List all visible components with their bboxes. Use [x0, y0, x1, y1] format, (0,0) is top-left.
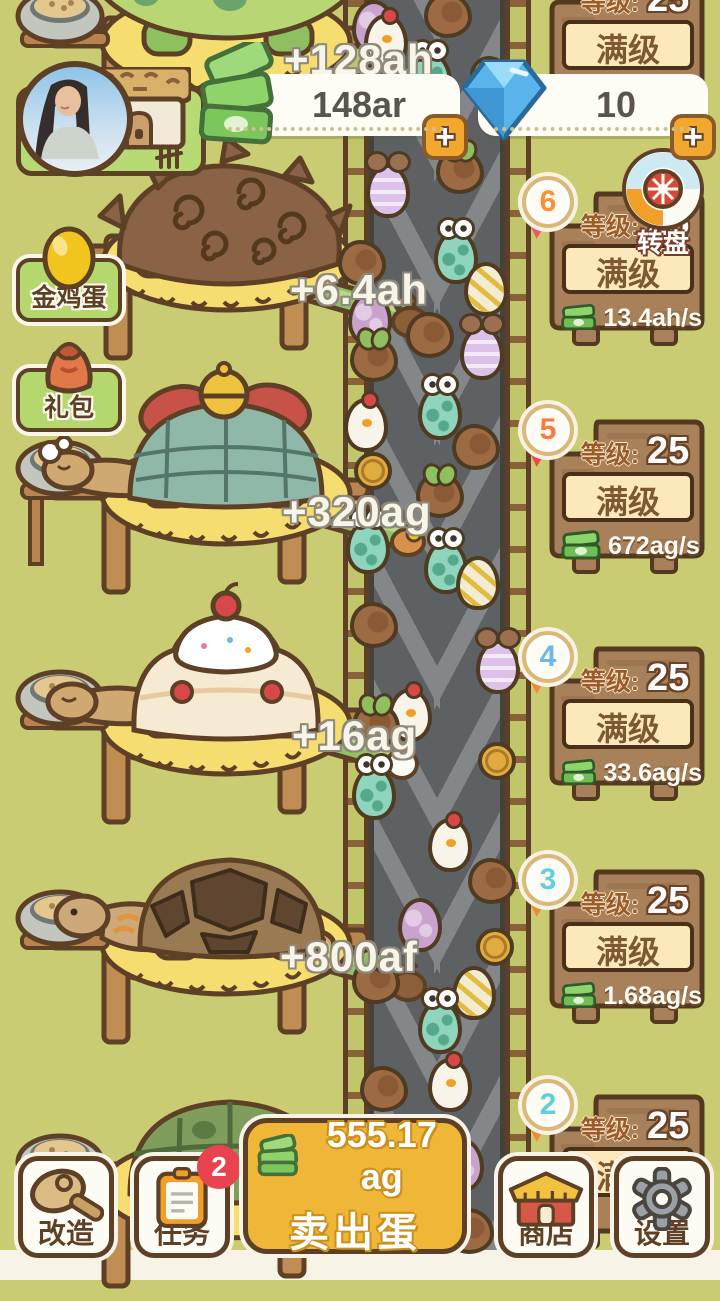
rank-badge: 3	[522, 854, 574, 906]
turtle-egg-idle-game-screen: { "header": { "coins_value": "148ar", "c…	[0, 0, 720, 1280]
conveyor-belt	[343, 0, 531, 1280]
gift-pouch-icon	[37, 328, 101, 394]
gem-amount: 10	[478, 74, 708, 136]
tasks-notification-badge: 2	[197, 1145, 241, 1189]
rank-badge: 4	[522, 631, 574, 683]
money-icon	[560, 980, 597, 1012]
golden-egg-button[interactable]: 金鸡蛋	[16, 258, 122, 322]
income-popup: +6.4ah	[290, 266, 428, 314]
rate-value: 13.4ah/s	[603, 304, 702, 333]
money-stack-icon	[254, 1134, 302, 1178]
shop-icon	[506, 1167, 586, 1231]
badge-number: 2	[540, 1088, 557, 1122]
rank-badge: 6	[522, 176, 574, 228]
max-level-button[interactable]: 满级	[562, 20, 694, 70]
tasks-button[interactable]: 任务 2	[134, 1156, 230, 1258]
generator-panel-4[interactable]: 4 等级: 25 满级 33.6ag/s	[548, 645, 706, 805]
level-label: 等级:	[581, 0, 639, 19]
level-value: 25	[647, 659, 689, 697]
turtle-bed-cake[interactable]	[8, 582, 368, 832]
conveyor-belt-track	[369, 0, 505, 1280]
generator-panel-5[interactable]: 5 等级: 25 满级 672ag/s	[548, 418, 706, 578]
coin-amount: 148ar	[212, 74, 460, 136]
money-icon	[560, 302, 597, 334]
turtle-cake	[48, 584, 318, 739]
mallet-icon	[28, 1167, 104, 1229]
turtle-bed-graphic	[8, 582, 368, 832]
shop-button[interactable]: 商店	[498, 1156, 594, 1258]
sell-action-label: 卖出蛋	[289, 1200, 421, 1258]
turtle-bed-tortoise[interactable]	[8, 802, 368, 1052]
avatar[interactable]	[17, 61, 133, 177]
generator-panel-3[interactable]: 3 等级: 25 满级 1.68ag/s	[548, 868, 706, 1028]
income-popup: +320ag	[282, 488, 432, 536]
rate-value: 672ag/s	[608, 532, 700, 561]
gear-icon	[630, 1167, 694, 1231]
max-level-button[interactable]: 满级	[562, 922, 694, 972]
level-value: 25	[647, 882, 689, 920]
level-value: 25	[647, 432, 689, 470]
rank-badge: 2	[522, 1079, 574, 1131]
add-gems-button[interactable]: +	[670, 114, 716, 160]
spin-wheel-button[interactable]: 转盘	[620, 146, 706, 260]
food-bowl	[18, 0, 108, 46]
golden-egg-icon	[40, 222, 98, 290]
level-label: 等级:	[581, 435, 639, 471]
badge-number: 6	[540, 185, 557, 219]
sell-eggs-button[interactable]: 555.17 ag 卖出蛋	[243, 1118, 467, 1254]
money-icon	[560, 530, 602, 562]
level-value: 25	[647, 1107, 689, 1145]
turtle-bed-graphic	[8, 802, 368, 1052]
add-coins-button[interactable]: +	[422, 114, 468, 160]
profile-card[interactable]	[16, 86, 206, 176]
coin-counter: 148ar +	[212, 74, 460, 136]
income-popup: +800af	[280, 933, 418, 981]
remodel-button[interactable]: 改造	[18, 1156, 114, 1258]
level-label: 等级:	[581, 662, 639, 698]
max-level-button[interactable]: 满级	[562, 472, 694, 522]
max-level-button[interactable]: 满级	[562, 699, 694, 749]
badge-number: 4	[540, 640, 557, 674]
sell-amount-value: 555.17 ag	[308, 1114, 456, 1198]
badge-number: 5	[540, 413, 557, 447]
level-label: 等级:	[581, 1110, 639, 1146]
income-popup: +16ag	[292, 712, 417, 760]
gem-counter: 10 +	[478, 74, 708, 136]
money-icon	[560, 757, 597, 789]
settings-button[interactable]: 设置	[614, 1156, 710, 1258]
rate-value: 1.68ag/s	[603, 982, 702, 1011]
badge-number: 3	[540, 863, 557, 897]
rate-value: 33.6ag/s	[603, 759, 702, 788]
avatar-photo	[23, 67, 115, 159]
level-label: 等级:	[581, 885, 639, 921]
rank-badge: 5	[522, 404, 574, 456]
gift-pack-button[interactable]: 礼包	[16, 368, 122, 432]
level-value: 25	[647, 0, 689, 18]
